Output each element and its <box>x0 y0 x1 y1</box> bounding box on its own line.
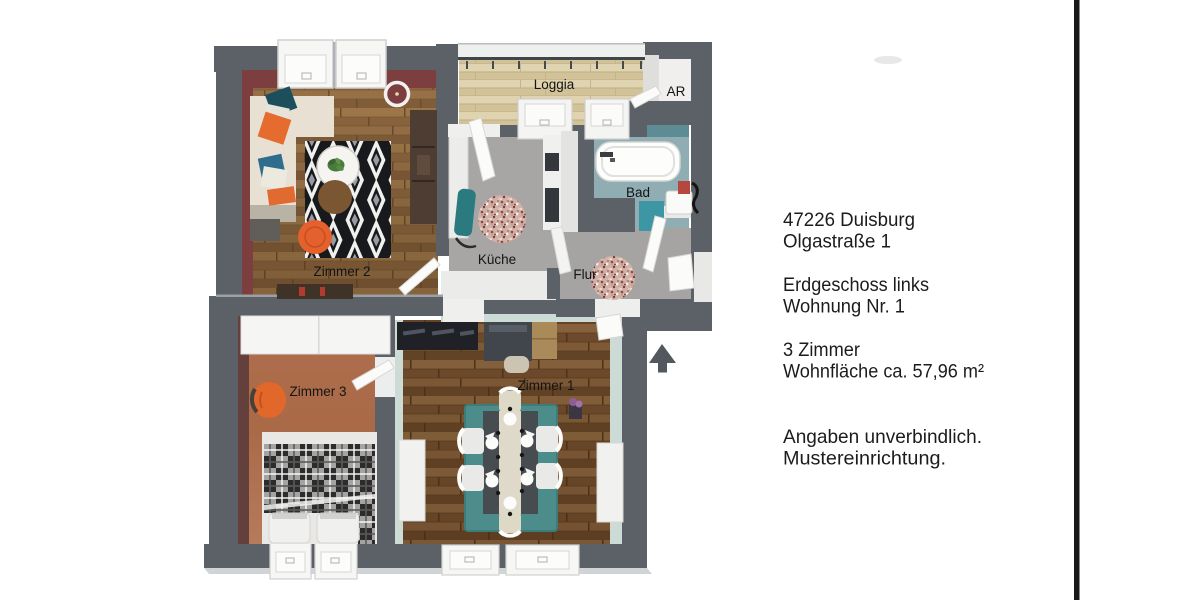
svg-text:Zimmer 3: Zimmer 3 <box>290 384 347 399</box>
svg-text:Mustereinrichtung.: Mustereinrichtung. <box>783 448 946 470</box>
svg-text:47226 Duisburg: 47226 Duisburg <box>783 209 915 231</box>
svg-text:Erdgeschoss links: Erdgeschoss links <box>783 274 929 296</box>
svg-text:AR: AR <box>667 84 686 99</box>
svg-text:Loggia: Loggia <box>534 77 575 92</box>
svg-text:Zimmer 2: Zimmer 2 <box>314 264 371 279</box>
svg-text:Wohnung Nr. 1: Wohnung Nr. 1 <box>783 296 905 318</box>
svg-text:Wohnfläche ca. 57,96 m²: Wohnfläche ca. 57,96 m² <box>783 361 984 383</box>
svg-text:Zimmer 1: Zimmer 1 <box>518 378 575 393</box>
svg-text:Bad: Bad <box>626 185 650 200</box>
svg-text:3 Zimmer: 3 Zimmer <box>783 339 860 361</box>
svg-text:Küche: Küche <box>478 252 516 267</box>
svg-text:Angaben unverbindlich.: Angaben unverbindlich. <box>783 426 982 448</box>
svg-text:Flur: Flur <box>573 267 597 282</box>
svg-text:Olgastraße 1: Olgastraße 1 <box>783 231 891 253</box>
